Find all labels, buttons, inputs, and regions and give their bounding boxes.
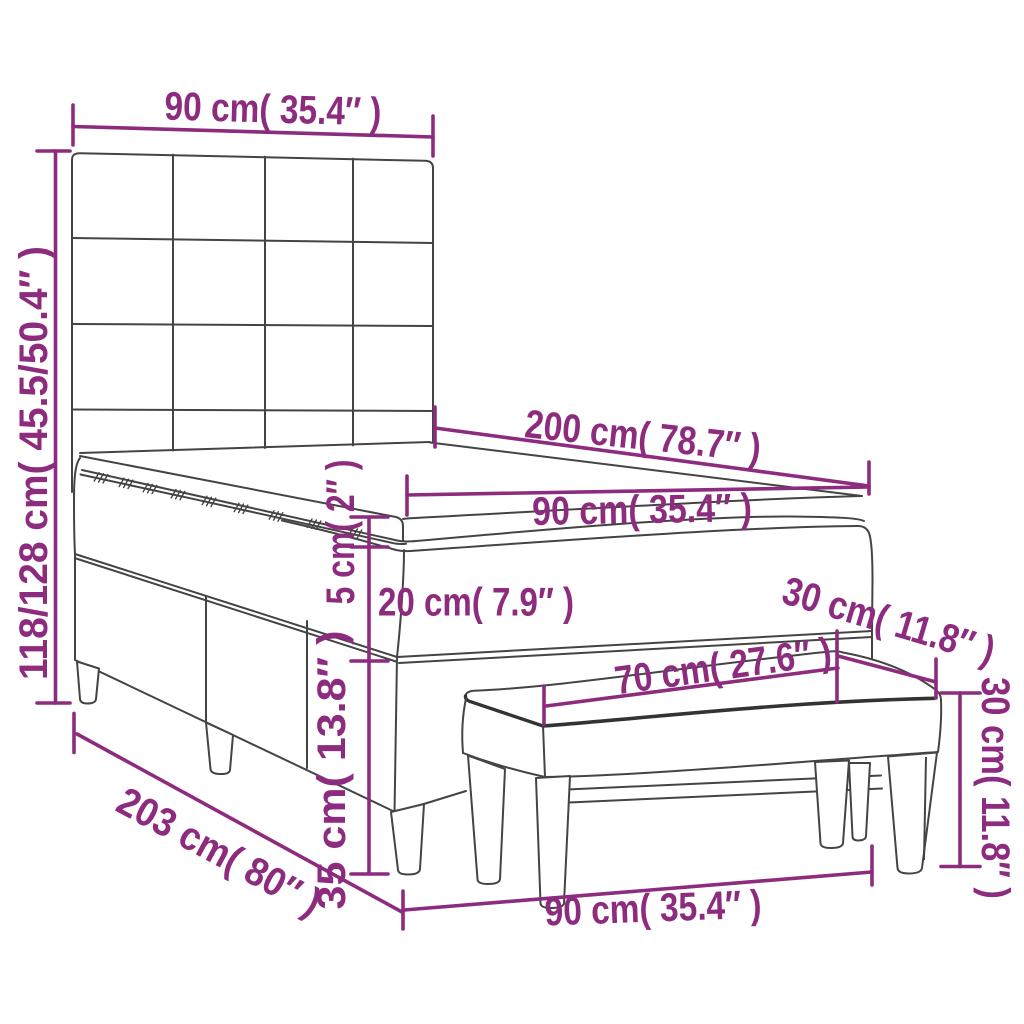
svg-text:90 cm( 35.4″ ): 90 cm( 35.4″ ) (164, 84, 382, 135)
svg-text:118/128 cm( 45.5/50.4″ ): 118/128 cm( 45.5/50.4″ ) (12, 246, 57, 680)
svg-text:35 cm( 13.8″ ): 35 cm( 13.8″ ) (308, 631, 353, 910)
svg-text:90 cm( 35.4″ ): 90 cm( 35.4″ ) (532, 484, 753, 533)
svg-text:30 cm( 11.8″ ): 30 cm( 11.8″ ) (974, 677, 1019, 899)
svg-text:90 cm( 35.4″ ): 90 cm( 35.4″ ) (544, 882, 762, 934)
svg-text:20 cm( 7.9″ ): 20 cm( 7.9″ ) (378, 580, 574, 625)
svg-text:5 cm( 2″ ): 5 cm( 2″ ) (317, 460, 362, 605)
